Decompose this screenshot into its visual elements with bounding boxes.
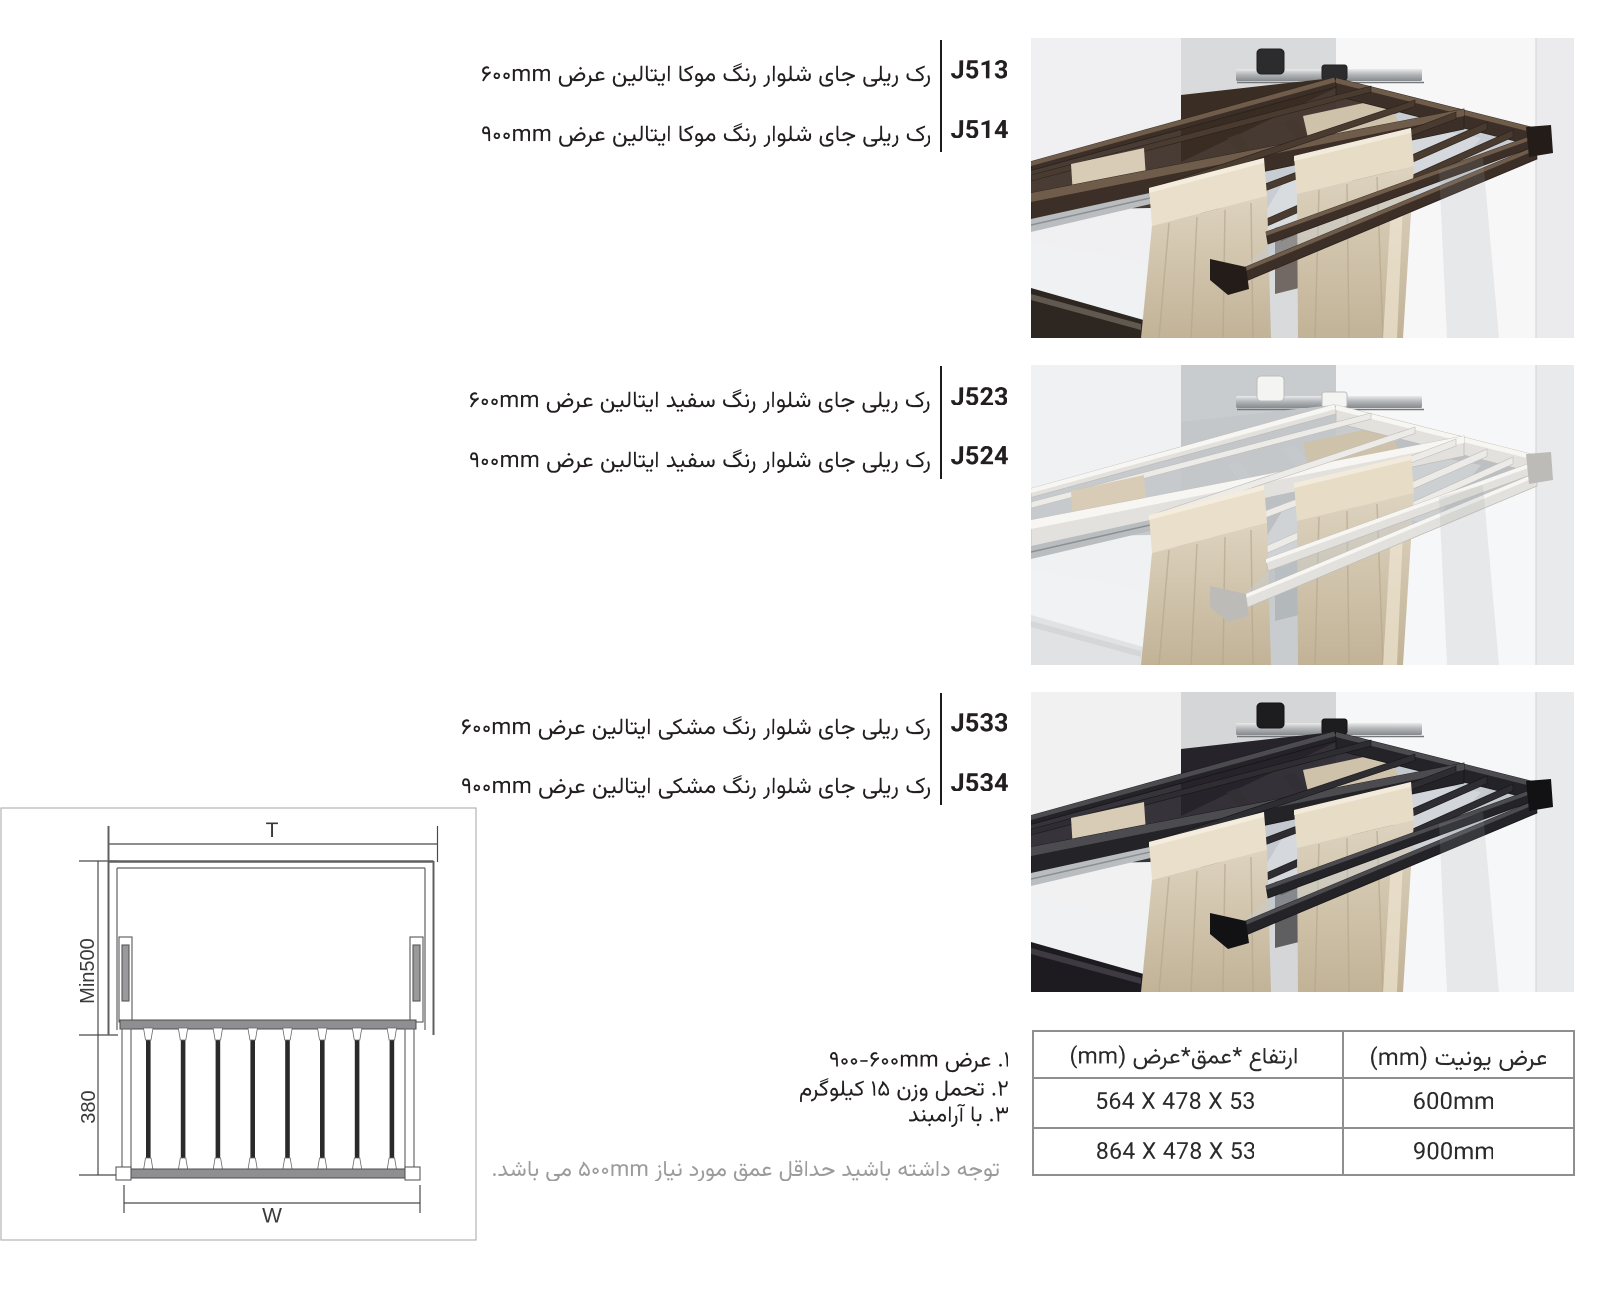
svg-text:T: T — [266, 819, 279, 842]
svg-text:Min500: Min500 — [77, 938, 99, 1004]
svg-text:380: 380 — [78, 1090, 100, 1123]
svg-text:W: W — [262, 1205, 282, 1228]
